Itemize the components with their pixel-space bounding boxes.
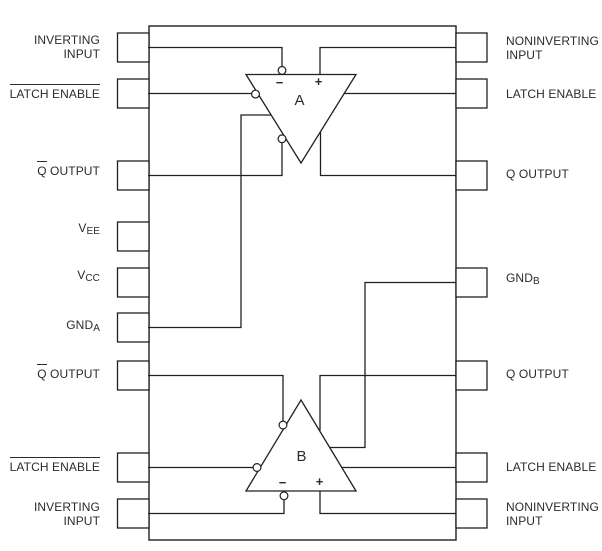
label-line2: INPUT [0,47,100,61]
comparator-a-noninverting-sign: + [308,75,329,89]
pin-label-left-inverting-input-b: INVERTINGINPUT [0,500,100,528]
label-text: INVERTING [34,33,100,47]
comparator-b-label: B [291,450,312,464]
label-subscript: EE [86,226,100,237]
wire-q-output-a [321,132,457,176]
label-text: INVERTING [34,500,100,514]
pin-box-left-vcc [118,268,150,297]
wire-gnd-a [148,115,272,328]
wire-inverting-input-b [148,500,284,514]
label-text: LATCH ENABLE [506,460,596,474]
pin-box-right-q-output-a [456,161,487,190]
label-text: OUTPUT [47,367,100,381]
comparator-a-triangle [246,75,356,164]
label-text: OUTPUT [47,164,100,178]
pin-box-right-latch-enable-a [456,79,487,108]
pin-box-left-gnd-a [118,313,150,342]
pin-label-right-q-output-a: Q OUTPUT [506,167,602,181]
pin-box-left-inverting-input-b [118,499,150,528]
bubble-latch-enable-a [252,90,260,98]
wire-qbar-output-b [148,376,283,422]
pin-box-right-noninverting-input-a [456,33,487,62]
bubble-qbar-output-a [278,135,286,143]
label-overline-part: Q [37,161,46,178]
comparator-a-inverting-sign: − [269,76,290,90]
pin-label-right-noninverting-input-a: NONINVERTINGINPUT [506,34,602,62]
comparator-a-label: A [289,94,310,108]
pin-label-right-latch-enable-b: LATCH ENABLE [506,460,602,474]
pin-label-left-gnd-a: GNDA [0,318,100,332]
label-overline-part: LATCH ENABLE [10,457,100,474]
pin-box-left-inverting-input-a [118,33,150,62]
pin-box-right-q-output-b [456,361,487,390]
label-text: NONINVERTING [506,500,599,514]
label-text: NONINVERTING [506,34,599,48]
wire-inverting-input-a [148,48,282,67]
label-subscript: A [93,323,100,334]
comparator-b-noninverting-sign: + [309,475,330,489]
pin-label-left-inverting-input-a: INVERTINGINPUT [0,33,100,61]
label-text: GND [506,271,533,285]
pin-label-left-latch-enable-a: LATCH ENABLE [0,87,100,101]
wire-gnd-b [330,283,456,448]
pin-label-right-latch-enable-a: LATCH ENABLE [506,87,602,101]
pin-label-left-qbar-output-a: Q OUTPUT [0,164,100,178]
label-line2: INPUT [506,48,602,62]
pin-box-left-qbar-output-a [118,161,150,190]
label-line2: INPUT [506,514,602,528]
pin-box-right-noninverting-input-b [456,499,487,528]
bubble-qbar-output-b [279,421,287,429]
pin-label-left-qbar-output-b: Q OUTPUT [0,367,100,381]
label-text: Q OUTPUT [506,367,569,381]
label-line2: INPUT [0,514,100,528]
label-text: LATCH ENABLE [506,87,596,101]
wire-noninverting-input-a [320,48,456,75]
label-text: GND [66,318,93,332]
bubble-inverting-input-b [280,492,288,500]
pin-label-left-vcc: VCC [0,268,100,282]
pin-box-left-qbar-output-b [118,361,150,390]
label-subscript: CC [85,273,100,284]
wire-qbar-output-a [148,143,282,176]
label-overline-part: Q [37,364,46,381]
comparator-b-triangle [246,400,356,491]
pin-box-left-latch-enable-a [118,79,150,108]
pin-label-left-vee: VEE [0,221,100,235]
label-overline-part: LATCH ENABLE [10,84,100,101]
pin-box-right-gnd-b [456,268,487,297]
wire-q-output-b [320,376,456,431]
label-subscript: B [533,276,540,287]
pin-box-left-latch-enable-b [118,453,150,482]
bubble-latch-enable-b [253,464,261,472]
label-text: Q OUTPUT [506,167,569,181]
pin-label-left-latch-enable-b: LATCH ENABLE [0,460,100,474]
bubble-inverting-input-a [278,67,286,75]
pin-box-left-vee [118,222,150,251]
comparator-b-inverting-sign: − [272,476,293,490]
ic-functional-diagram: A − + B − + INVERTINGINPUT LATCH ENABLE … [0,0,602,551]
pin-box-right-latch-enable-b [456,453,487,482]
pin-label-right-q-output-b: Q OUTPUT [506,367,602,381]
pin-label-right-noninverting-input-b: NONINVERTINGINPUT [506,500,602,528]
pin-label-right-gnd-b: GNDB [506,271,602,285]
wire-noninverting-input-b [320,491,456,514]
